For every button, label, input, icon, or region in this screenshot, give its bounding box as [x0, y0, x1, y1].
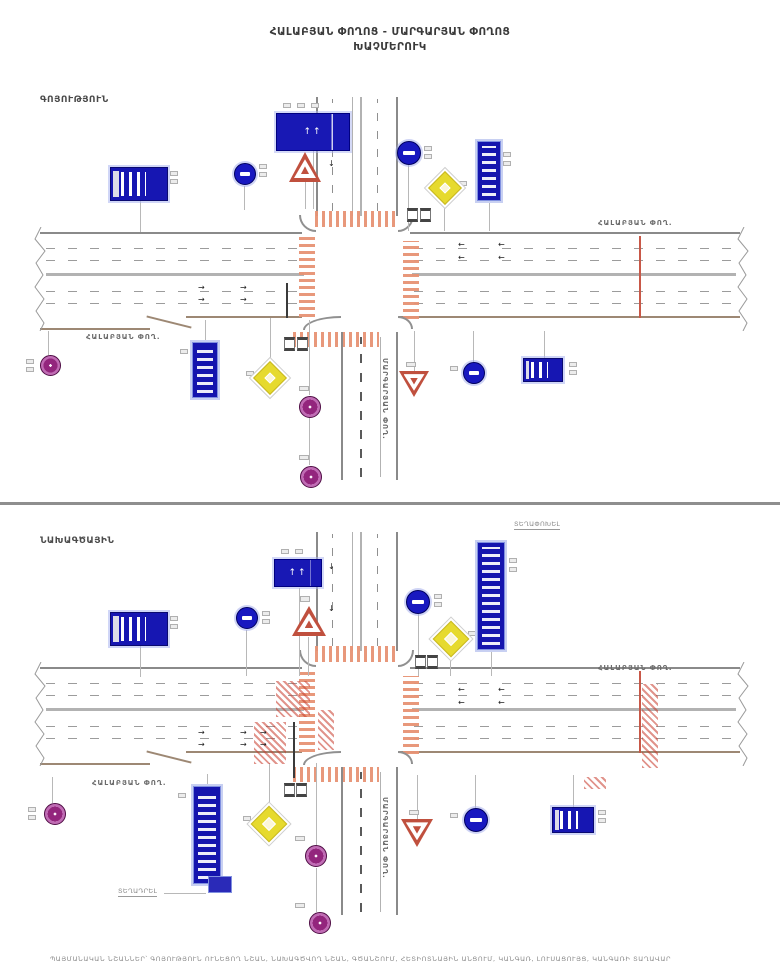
- sign-code-tag: [26, 367, 34, 372]
- leader-line: [544, 331, 545, 359]
- crosswalk-south: [293, 767, 379, 782]
- path: [738, 227, 748, 331]
- lane-arrow: ↓: [328, 563, 335, 571]
- leader-line: [316, 763, 317, 845]
- sign-code-tag: [468, 631, 476, 636]
- street-label-south: ՄԱՐԳԱՐՅԱՆ ՓՈՂ.: [381, 797, 389, 879]
- round-sign-purple-w: [40, 355, 61, 376]
- lane-dash-row: [414, 291, 734, 292]
- sign-code-tag: [299, 455, 309, 460]
- lane-arrow: ←: [458, 241, 465, 249]
- sign-code-tag: [509, 558, 517, 563]
- sign-code-tag: [295, 903, 305, 908]
- path: [35, 662, 45, 766]
- south-road-left-edge: [341, 767, 343, 915]
- lane-arrow: ←: [498, 686, 505, 694]
- sign-code-tag: [409, 810, 419, 815]
- solid-lane-line: [286, 283, 288, 318]
- stop-line-red: [639, 671, 641, 753]
- signal-detector-box: [407, 208, 418, 222]
- sign-code-tag: [598, 818, 606, 823]
- sign-code-tag: [503, 161, 511, 166]
- round-sign-purple-s2: [309, 912, 331, 934]
- street-name-sign-ne: [477, 542, 505, 650]
- bus-stop-sign-nw: [110, 612, 168, 646]
- sign-code-tag: [450, 366, 458, 371]
- sign-code-tag: [28, 807, 36, 812]
- signal-detector-box: [420, 208, 431, 222]
- drawing-canvas: ՀԱԼԱԲՅԱՆ ՓՈՂՈՑ - ՄԱՐԳԱՐՅԱՆ ՓՈՂՈՑ ԽԱՉՄԵՐՈ…: [0, 0, 780, 965]
- leader-line: [316, 868, 317, 912]
- signal-detector-box: [296, 783, 307, 797]
- north-lane-dash-2: [377, 534, 378, 646]
- leader-line: [269, 763, 270, 812]
- signal-detector-box: [297, 337, 308, 351]
- lane-arrow: →: [240, 284, 247, 292]
- crosswalk-east: [403, 676, 419, 754]
- sign-code-tag: [503, 152, 511, 157]
- sign-code-tag: [180, 349, 188, 354]
- median-east: [412, 273, 736, 276]
- leader-line: [270, 318, 271, 366]
- sign-code-tag: [434, 594, 442, 599]
- crosswalk-north: [315, 211, 399, 227]
- signal-detector-box: [284, 337, 295, 351]
- south-center-dash: [360, 772, 362, 912]
- installed-sign-chip: [208, 876, 232, 893]
- leader-line: [205, 320, 206, 342]
- signal-detector-box: [284, 783, 295, 797]
- sign-code-tag: [170, 171, 178, 176]
- sign-code-tag: [299, 386, 309, 391]
- page: { "title": { "line1": "ՀԱԼԱԲՅԱՆ ՓՈՂՈՑ - …: [0, 0, 780, 965]
- crosswalk-east: [403, 241, 419, 319]
- lane-arrow: ←: [458, 699, 465, 707]
- leader-line: [48, 331, 49, 355]
- north-road-divider-1: [352, 532, 353, 651]
- leader-line: [246, 630, 247, 676]
- sign-code-tag: [569, 362, 577, 367]
- crosswalk-west: [299, 237, 315, 317]
- round-sign-blue-nw: [236, 607, 258, 629]
- street-label-west: ՀԱԼԱԲՅԱՆ ՓՈՂ.: [92, 779, 167, 787]
- leader-line: [475, 775, 476, 808]
- leader-line: [244, 186, 245, 210]
- road-bottom-edge: [186, 316, 302, 318]
- sign-code-tag: [450, 813, 458, 818]
- west-road-top-edge: [40, 667, 302, 669]
- street-label-west: ՀԱԼԱԲՅԱՆ ՓՈՂ.: [86, 333, 161, 341]
- panel-divider: [0, 502, 780, 505]
- leader-line: [140, 201, 141, 232]
- median-west: [46, 708, 304, 711]
- intersection-plan-existing: [0, 85, 780, 505]
- new-marking-hatch: [642, 684, 658, 768]
- lane-arrow: →: [198, 741, 205, 749]
- sign-code-tag: [170, 179, 178, 184]
- stop-line-red: [639, 236, 641, 318]
- corner-arc-nw: [299, 215, 316, 232]
- lane-dash-row: [46, 248, 302, 249]
- corner-arc-ne: [398, 650, 414, 667]
- drawing-title-line1: ՀԱԼԱԲՅԱՆ ՓՈՂՈՑ - ՄԱՐԳԱՐՅԱՆ ՓՈՂՈՑ: [0, 26, 780, 38]
- leader-line: [164, 893, 206, 894]
- new-marking-hatch: [584, 777, 606, 789]
- north-road-divider-2: [360, 97, 362, 216]
- break-line-right: [736, 662, 750, 766]
- south-road-left-edge: [341, 332, 343, 480]
- sign-code-tag: [26, 359, 34, 364]
- leader-line: [308, 637, 309, 676]
- round-sign-purple-s2: [300, 466, 322, 488]
- round-sign-blue-s: [464, 808, 488, 832]
- street-label-east: ՀԱԼԱԲՅԱՆ ՓՈՂ.: [598, 664, 673, 672]
- lane-arrow: →: [198, 296, 205, 304]
- sign-code-tag: [243, 816, 251, 821]
- street-label-east: ՀԱԼԱԲՅԱՆ ՓՈՂ.: [598, 219, 673, 227]
- west-road-top-edge: [40, 232, 302, 234]
- lane-dash-row: [414, 726, 734, 727]
- crosswalk-north: [315, 646, 399, 662]
- legend-footer-text: ՊԱՅՄԱՆԱԿԱՆ ՆՇԱՆՆԵՐ՝ ԳՈՅՈՒԹՅՈՒՆ ՈՒՆԵՑՈՂ Ն…: [50, 955, 740, 964]
- road-edge-taper: [146, 315, 191, 328]
- lane-arrow: ←: [458, 254, 465, 262]
- break-line-right: [736, 227, 750, 331]
- lane-arrow: ←: [498, 699, 505, 707]
- leader-line: [305, 182, 306, 209]
- lane-arrow: →: [240, 296, 247, 304]
- lane-directions-sign-n: ↑↑: [274, 559, 322, 587]
- lane-dash-row: [414, 303, 734, 304]
- south-road-right-edge: [396, 332, 398, 480]
- sign-code-tag: [283, 103, 291, 108]
- sign-code-tag: [246, 371, 254, 376]
- north-road-right-edge: [396, 532, 398, 651]
- north-road-divider-1: [352, 97, 353, 216]
- street-name-sign-ne: [477, 141, 501, 201]
- sign-code-tag: [281, 549, 289, 554]
- break-line-left: [33, 662, 47, 766]
- lane-arrow: ←: [498, 254, 505, 262]
- leader-line: [309, 417, 310, 465]
- sign-code-tag: [28, 815, 36, 820]
- round-sign-blue-ne: [397, 141, 421, 165]
- lane-dash-row: [414, 738, 734, 739]
- lane-arrow: →: [260, 729, 267, 737]
- road-bottom-edge-offset: [40, 763, 150, 765]
- lane-arrow: ↓: [328, 160, 335, 168]
- sign-code-tag: [406, 362, 416, 367]
- lane-arrow: →: [260, 741, 267, 749]
- round-sign-blue-s: [463, 362, 485, 384]
- round-sign-blue-nw: [234, 163, 256, 185]
- lane-dash-row: [46, 683, 302, 684]
- sign-code-tag: [262, 611, 270, 616]
- solid-lane-line: [293, 722, 295, 778]
- sign-code-tag: [178, 793, 186, 798]
- break-line-left: [33, 227, 47, 331]
- leader-line: [52, 777, 53, 803]
- bus-stop-sign-nw: [110, 167, 168, 201]
- leader-line: [491, 651, 492, 676]
- sign-code-tag: [295, 836, 305, 841]
- road-bottom-edge: [399, 751, 740, 753]
- sign-code-tag: [424, 154, 432, 159]
- sign-code-tag: [297, 103, 305, 108]
- leader-line: [489, 201, 490, 231]
- intersection-plan-design: [0, 520, 780, 940]
- sign-code-tag: [598, 810, 606, 815]
- lane-dash-row: [46, 260, 302, 261]
- road-edge-taper: [146, 750, 191, 763]
- lane-directions-sign-n: ↑↑: [276, 113, 350, 151]
- street-label-south: ՄԱՐԳԱՐՅԱՆ ՓՈՂ.: [381, 358, 389, 440]
- bus-stop-sign-se: [523, 358, 563, 382]
- sign-code-tag: [259, 172, 267, 177]
- median-east: [412, 708, 736, 711]
- lane-arrow: →: [198, 284, 205, 292]
- lane-arrow: ←: [458, 686, 465, 694]
- street-name-sign-s: [193, 786, 221, 884]
- round-sign-blue-ne: [406, 590, 430, 614]
- signal-detector-box: [427, 655, 438, 669]
- sign-code-tag: [509, 567, 517, 572]
- sign-code-tag: [311, 103, 319, 108]
- road-bottom-edge-offset: [40, 328, 150, 330]
- leader-line: [140, 646, 141, 677]
- sign-code-tag: [434, 602, 442, 607]
- lane-arrow: →: [198, 729, 205, 737]
- road-bottom-edge: [399, 316, 740, 318]
- sign-code-tag: [259, 164, 267, 169]
- round-sign-purple-s1: [299, 396, 321, 418]
- sign-code-tag: [170, 624, 178, 629]
- new-marking-hatch: [276, 681, 310, 717]
- north-lane-dash-1: [332, 534, 333, 646]
- path: [35, 227, 45, 331]
- new-marking-hatch: [254, 722, 286, 764]
- new-marking-hatch: [318, 710, 334, 750]
- round-sign-purple-s1: [305, 845, 327, 867]
- lane-arrow: →: [240, 741, 247, 749]
- note-relocate: ՏԵՂԱՓՈԽԵԼ: [514, 520, 560, 530]
- bus-stop-sign-se: [552, 807, 594, 833]
- street-name-sign-s: [192, 342, 218, 398]
- south-road-right-edge: [396, 767, 398, 915]
- east-road-top-edge: [410, 232, 740, 234]
- sign-code-tag: [569, 370, 577, 375]
- note-install: ՏԵՂԱԴՐԵԼ: [118, 887, 157, 897]
- lane-dash-row: [46, 291, 302, 292]
- sign-code-tag: [295, 549, 303, 554]
- median-west: [46, 273, 304, 276]
- drawing-title-line2: ԽԱՉՄԵՐՈՒԿ: [0, 41, 780, 53]
- lane-arrow: ↓: [328, 605, 335, 613]
- round-sign-purple-w: [44, 803, 66, 825]
- lane-dash-row: [46, 695, 302, 696]
- sign-code-tag: [300, 596, 310, 602]
- leader-line: [309, 320, 310, 395]
- lane-arrow: ←: [498, 241, 505, 249]
- sign-code-tag: [170, 616, 178, 621]
- sign-code-tag: [424, 146, 432, 151]
- corner-arc-sw: [303, 751, 341, 765]
- leader-line: [473, 331, 474, 362]
- path: [738, 662, 748, 766]
- leader-line: [573, 775, 574, 807]
- south-center-dash: [360, 337, 362, 477]
- sign-code-tag: [262, 619, 270, 624]
- north-road-divider-2: [360, 532, 362, 651]
- north-lane-dash-2: [377, 99, 378, 211]
- lane-dash-row: [414, 683, 734, 684]
- east-road-top-edge: [410, 667, 740, 669]
- signal-detector-box: [415, 655, 426, 669]
- lane-dash-row: [46, 303, 302, 304]
- lane-arrow: →: [240, 729, 247, 737]
- lane-dash-row: [414, 695, 734, 696]
